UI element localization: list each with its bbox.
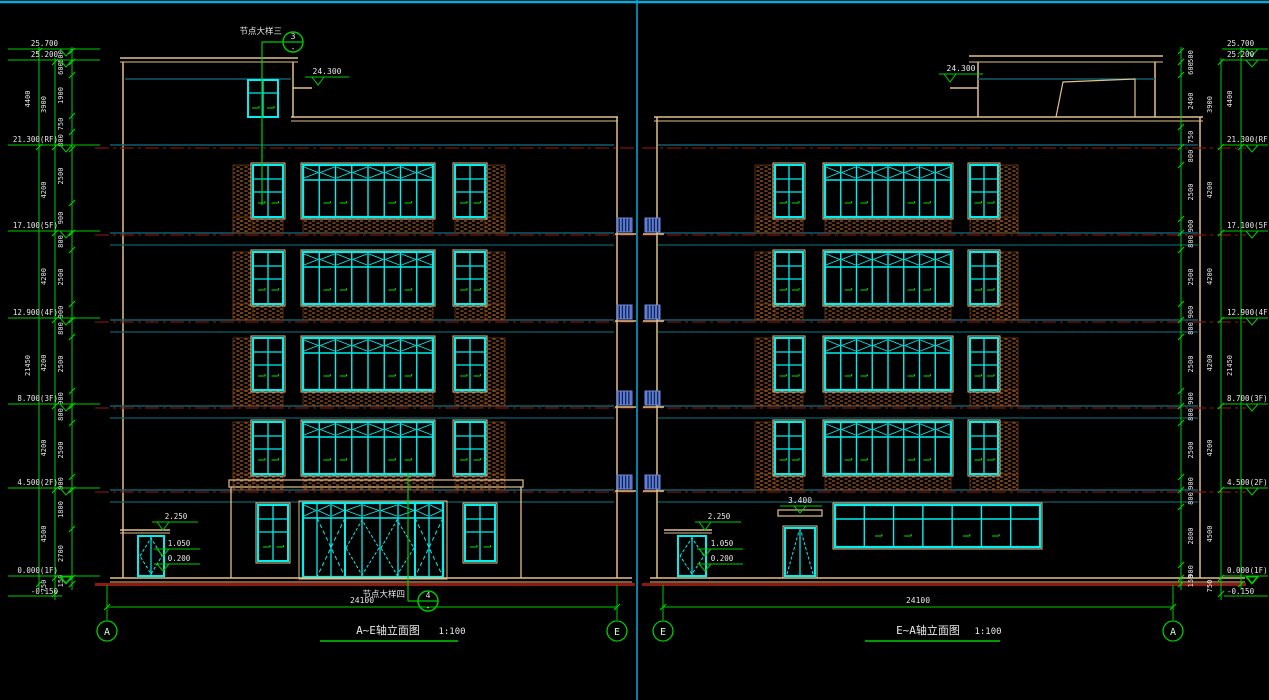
level-label: -0.150 (1227, 587, 1255, 596)
level-label: 0.000(1F) (17, 566, 58, 575)
span-dim-text: 24100 (906, 596, 930, 605)
louver-vent (617, 391, 632, 405)
level-triangle (1246, 60, 1258, 67)
dim-text: 4200 (1206, 355, 1214, 372)
level-label: 17.100(5F) (13, 221, 58, 230)
span-dim-text: 24100 (350, 596, 374, 605)
level-label: 25.700 (31, 39, 59, 48)
level-label: 17.100(5F) (1227, 221, 1269, 230)
dim-text: 750 (1206, 580, 1214, 593)
louver-vent (617, 218, 632, 232)
callout-number: 4 (426, 591, 431, 600)
dim-text: 21450 (24, 355, 32, 376)
dim-text: 900 (1187, 220, 1195, 233)
dim-text: 900 (1187, 477, 1195, 490)
dim-text: 4400 (1226, 91, 1234, 108)
cad-sheet: 2.2501.0500.20024.3003-节点大样三4-节点大样四2.250… (0, 0, 1269, 700)
dim-text: 800 (1187, 492, 1195, 505)
level-triangle (1246, 318, 1258, 325)
level-label: 21.300(RF) (1227, 135, 1269, 144)
axis-letter: E (614, 627, 620, 638)
level-label: 0.000(1F) (1227, 566, 1268, 575)
drawing-scale: 1:100 (438, 627, 465, 637)
level-label: 12.900(4F) (13, 308, 58, 317)
axis-letter: E (660, 627, 666, 638)
level-label: 25.200 (31, 50, 59, 59)
level-label: 0.200 (711, 554, 734, 563)
dim-text: 800 (1187, 322, 1195, 335)
level-triangle (1246, 488, 1258, 495)
dim-text: 750 (1187, 131, 1195, 144)
level-triangle (312, 77, 324, 85)
level-label: 4.500(2F) (1227, 478, 1268, 487)
dim-text: 4200 (40, 440, 48, 457)
level-label: 12.900(4F) (1227, 308, 1269, 317)
dim-text: 2800 (1187, 528, 1195, 545)
level-triangle (944, 74, 956, 82)
dim-text: 900 (57, 392, 65, 405)
dim-text: 2500 (57, 442, 65, 459)
level-label: -0.150 (31, 587, 59, 596)
dim-text: 4200 (1206, 440, 1214, 457)
dim-text: 800 (1187, 235, 1195, 248)
parapet-level-label: 24.300 (947, 64, 976, 73)
dim-text: 3900 (1206, 96, 1214, 113)
dim-text: 4400 (24, 91, 32, 108)
dim-text: 900 (57, 306, 65, 319)
level-label: 8.700(3F) (17, 394, 58, 403)
level-label: 0.200 (168, 554, 191, 563)
dim-text: 900 (57, 212, 65, 225)
callout-number: 3 (291, 32, 296, 41)
elevation-drawing-canvas: 2.2501.0500.20024.3003-节点大样三4-节点大样四2.250… (0, 0, 1269, 700)
dim-text: 800 (57, 408, 65, 421)
level-triangle (1246, 231, 1258, 238)
louver-vent (617, 475, 632, 489)
dim-text: 2500 (57, 168, 65, 185)
dim-text: 2500 (1187, 184, 1195, 201)
louver-vent (645, 218, 660, 232)
level-label: 2.250 (708, 512, 731, 521)
dim-text: 2500 (1187, 269, 1195, 286)
drawing-title: E~A轴立面图 (896, 623, 960, 637)
base-line (642, 583, 1246, 586)
dim-text: 3900 (40, 96, 48, 113)
dim-text: 800 (57, 235, 65, 248)
louver-vent (645, 305, 660, 319)
level-triangle (699, 522, 711, 530)
dim-text: 4200 (40, 182, 48, 199)
window-band-frame (835, 505, 1040, 547)
door-level-label: 3.400 (788, 496, 812, 505)
dim-text: 2500 (57, 269, 65, 286)
level-label: 4.500(2F) (17, 478, 58, 487)
dim-text: 600 (1187, 62, 1195, 75)
louver-vent (645, 391, 660, 405)
dim-text: 4500 (40, 526, 48, 543)
dim-text: 750 (57, 118, 65, 131)
axis-letter: A (1170, 627, 1176, 638)
dim-text: 4200 (1206, 268, 1214, 285)
dim-text: 800 (1187, 150, 1195, 163)
axis-letter: A (104, 627, 110, 638)
dim-text: 21450 (1226, 355, 1234, 376)
level-label: 2.250 (165, 512, 188, 521)
base-line (95, 583, 635, 586)
dim-text: 150 (1187, 575, 1195, 588)
callout-sheet: - (291, 44, 296, 53)
drawing-scale: 1:100 (974, 627, 1001, 637)
dim-text: 4500 (1206, 526, 1214, 543)
dim-text: 2500 (1187, 356, 1195, 373)
roof-stair-profile (1056, 79, 1135, 117)
dim-text: 1900 (57, 87, 65, 104)
level-label: 1.050 (711, 539, 734, 548)
level-label: 25.700 (1227, 39, 1255, 48)
level-triangle (157, 522, 169, 530)
level-label: 21.300(RF) (13, 135, 58, 144)
dim-text: 4200 (40, 268, 48, 285)
louver-vent (617, 305, 632, 319)
dim-text: 500 (1187, 50, 1195, 63)
dim-text: 900 (1187, 306, 1195, 319)
level-triangle (1246, 145, 1258, 152)
dim-text: 2400 (1187, 93, 1195, 110)
parapet-level-label: 24.300 (313, 67, 342, 76)
callout-label: 节点大样三 (239, 26, 282, 37)
level-triangle (1246, 404, 1258, 411)
dim-text: 800 (1187, 408, 1195, 421)
dim-text: 4200 (1206, 182, 1214, 199)
level-label: 8.700(3F) (1227, 394, 1268, 403)
louver-vent (645, 475, 660, 489)
dim-text: 4200 (40, 355, 48, 372)
dim-text: 2500 (57, 356, 65, 373)
storefront-frame (303, 503, 443, 577)
level-label: 1.050 (168, 539, 191, 548)
drawing-title: A~E轴立面图 (356, 623, 420, 637)
dim-text: 900 (1187, 392, 1195, 405)
dim-text: 1800 (57, 501, 65, 518)
dim-text: 800 (57, 322, 65, 335)
dim-text: 2500 (1187, 442, 1195, 459)
dim-text: 2700 (57, 545, 65, 562)
level-label: 25.200 (1227, 50, 1255, 59)
